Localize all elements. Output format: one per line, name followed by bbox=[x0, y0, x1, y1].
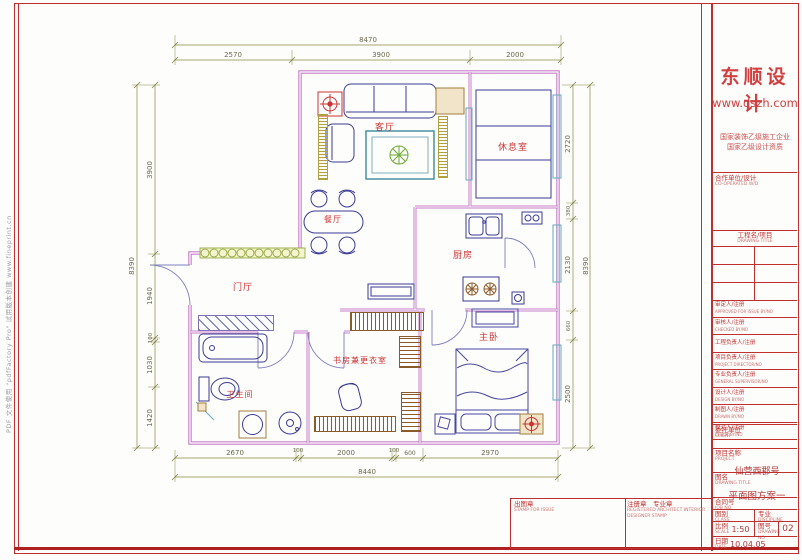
issue-stamp-label-en: STAMP FOR ISSUE bbox=[511, 508, 625, 514]
signature-row-zh: 专业负责人/注册 bbox=[715, 372, 795, 379]
scale-label: 比例 bbox=[715, 523, 729, 530]
signature-row-en: APPROVED FOR ISSUE BY/NO bbox=[715, 309, 795, 315]
date-cell: 日期 DATE 10.04.05 bbox=[713, 537, 801, 552]
tb-rule bbox=[713, 282, 797, 283]
coop-label-en: CO-OPERATED W/D bbox=[715, 182, 799, 188]
signature-row-en: DESIGN BY/NO bbox=[715, 397, 795, 403]
sheet-border bbox=[14, 3, 799, 554]
drawing-no-label: 图号 bbox=[758, 523, 780, 530]
registered-stamp-label: 注册章 专业章 bbox=[624, 499, 711, 508]
client-section: 委托单位 CLIENT bbox=[713, 426, 801, 441]
registered-stamp-box: 注册章 专业章 REGISTERED ARCHITECT INTERIOR DE… bbox=[624, 498, 712, 549]
signature-row-zh: 审核人/注册 bbox=[715, 320, 795, 327]
project-label-en: PROJECT bbox=[715, 457, 799, 463]
signature-row: 审核人/注册CHECKED BY/NO bbox=[713, 318, 797, 336]
signature-row-en: GENERAL SUPERVISOR/NO bbox=[715, 379, 795, 385]
signature-row-zh: 项目负责人/注册 bbox=[715, 355, 795, 362]
signature-row-zh: 工程负责人/注册 bbox=[715, 340, 795, 347]
discipline-label: 专业 bbox=[758, 511, 798, 518]
drawing-title-label-en: DRAWING TITLE bbox=[715, 481, 799, 487]
project-header: 工程名/项目 DRAWING TITLE bbox=[713, 232, 797, 245]
signature-row-zh: 审定人/注册 bbox=[715, 302, 795, 309]
drawing-no-value: 02 bbox=[779, 524, 797, 534]
registered-stamp-label-en: REGISTERED ARCHITECT INTERIOR DESIGNER S… bbox=[624, 508, 711, 519]
project-header-en: DRAWING TITLE bbox=[713, 239, 797, 245]
signature-row-zh: 设计人/注册 bbox=[715, 390, 795, 397]
signature-row: 审定人/注册APPROVED FOR ISSUE BY/NO bbox=[713, 300, 797, 318]
signature-row-en: PROJECT DIRECTOR/NO bbox=[715, 362, 795, 368]
signature-row: 工程负责人/注册 bbox=[713, 335, 797, 353]
date-label-en: DATE bbox=[715, 545, 728, 551]
scale-label-en: SCALE bbox=[715, 530, 729, 536]
issue-stamp-label: 出图章 bbox=[511, 499, 625, 508]
signature-row-en: DRAWN BY/NO bbox=[715, 414, 795, 420]
job-no-label: 合同号 bbox=[715, 499, 799, 506]
cert-line2: 国家乙级设计资质 bbox=[714, 142, 796, 152]
signature-row: 项目负责人/注册PROJECT DIRECTOR/NO bbox=[713, 353, 797, 371]
scale-value: 1:50 bbox=[731, 525, 749, 534]
signature-row: 制图人/注册DRAWN BY/NO bbox=[713, 405, 797, 423]
coop-label: 合作单位/设计 bbox=[715, 175, 799, 182]
signature-row-en: CHECKED BY/NO bbox=[715, 327, 795, 333]
client-label-en: CLIENT bbox=[715, 434, 799, 440]
tb-rule bbox=[713, 264, 797, 265]
signature-row: 专业负责人/注册GENERAL SUPERVISOR/NO bbox=[713, 370, 797, 388]
issue-stamp-box: 出图章 STAMP FOR ISSUE bbox=[510, 498, 626, 549]
tb-grid-vline bbox=[754, 246, 755, 300]
coop-section: 合作单位/设计 CO-OPERATED W/D bbox=[713, 174, 801, 189]
tb-rule bbox=[713, 424, 797, 425]
date-value: 10.04.05 bbox=[730, 540, 766, 549]
drawing-title-label: 图名 bbox=[715, 474, 799, 481]
cert-line1: 国家装饰乙级施工企业 bbox=[714, 132, 796, 142]
date-label: 日期 bbox=[715, 538, 728, 545]
project-label: 项目名称 bbox=[715, 450, 799, 457]
company-certs: 国家装饰乙级施工企业 国家乙级设计资质 bbox=[714, 132, 796, 152]
signature-row: 设计人/注册DESIGN BY/NO bbox=[713, 388, 797, 406]
titleblock-divider bbox=[701, 4, 702, 551]
scale-cell: 比例 SCALE 1:50 bbox=[713, 522, 757, 537]
tb-rule bbox=[713, 246, 797, 247]
class-label: 图别 bbox=[715, 511, 755, 518]
company-website: www.dszh.com bbox=[712, 96, 798, 110]
client-label: 委托单位 bbox=[715, 427, 799, 434]
sheet-inner-edge bbox=[18, 4, 19, 551]
watermark-text: PDF 文件使用 "pdfFactory Pro" 试用版本创建 www.fin… bbox=[3, 215, 13, 433]
signature-row-zh: 制图人/注册 bbox=[715, 407, 795, 414]
tb-rule bbox=[713, 172, 797, 173]
signature-rows: 审定人/注册APPROVED FOR ISSUE BY/NO审核人/注册CHEC… bbox=[713, 300, 797, 440]
project-header-zh: 工程名/项目 bbox=[713, 232, 797, 239]
